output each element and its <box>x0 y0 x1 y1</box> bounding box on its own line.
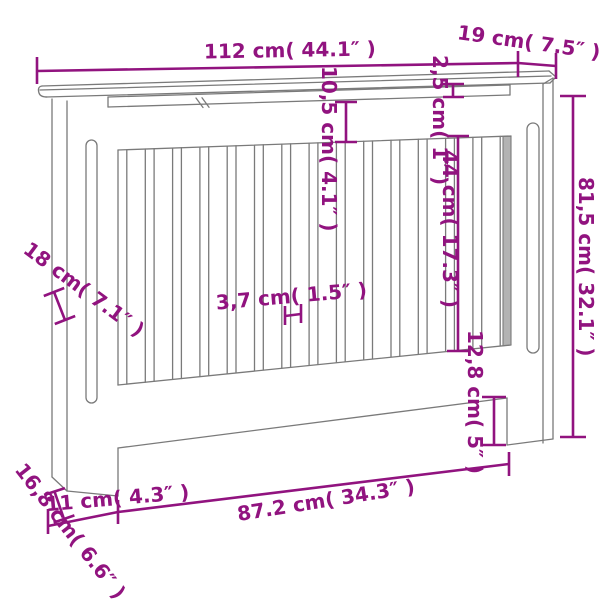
dim-top-depth-line <box>518 63 556 66</box>
right-foot-bottom <box>507 439 553 445</box>
dim-top-depth-label: 19 cm( 7.5″ ) <box>456 20 600 64</box>
dim-side-depth: 18 cm( 7.1″ ) <box>19 237 149 342</box>
dim-base-depth-label: 16,8 cm( 6.6″ ) <box>10 458 131 600</box>
dim-foot-height-label: 12,8 cm( 5″ ) <box>463 330 487 474</box>
diagram-canvas: 112 cm( 44.1″ ) 19 cm( 7.5″ ) 10,5 cm( 4… <box>0 0 600 600</box>
opening-top-edge <box>118 398 507 448</box>
right-capsule-slot <box>527 123 539 353</box>
right-side-panel <box>543 78 553 443</box>
dim-foot-height: 12,8 cm( 5″ ) <box>463 330 506 474</box>
rail-joint-line-2 <box>202 98 209 108</box>
dim-slat-width-line <box>285 314 301 316</box>
dim-slat-length: 44 cm( 17.3″ ) <box>438 136 469 351</box>
shaded-slat <box>503 136 511 346</box>
dim-base-depth: 16,8 cm( 6.6″ ) <box>10 458 131 600</box>
left-capsule-slot <box>86 140 97 403</box>
radiator-cover-drawing: 112 cm( 44.1″ ) 19 cm( 7.5″ ) 10,5 cm( 4… <box>0 0 600 600</box>
dim-total-height-label: 81,5 cm( 32.1″ ) <box>574 177 598 357</box>
shelf-bottom-edge <box>46 83 550 97</box>
top-shelf <box>38 71 556 97</box>
dim-shelf-gap-label: 10,5 cm( 4.1″ ) <box>317 66 341 232</box>
dim-side-depth-line <box>54 292 65 320</box>
dim-opening-width-label: 87.2 cm( 34.3″ ) <box>235 474 416 526</box>
dim-slat-length-label: 44 cm( 17.3″ ) <box>438 150 462 308</box>
dim-shelf-gap: 10,5 cm( 4.1″ ) <box>317 66 357 232</box>
dim-side-depth-label: 18 cm( 7.1″ ) <box>19 237 149 342</box>
dim-top-depth: 19 cm( 7.5″ ) <box>456 20 600 79</box>
dim-top-width-label: 112 cm( 44.1″ ) <box>204 37 376 64</box>
shelf-left-cap <box>38 86 47 97</box>
rail-joint-line-1 <box>196 98 203 108</box>
dim-total-height: 81,5 cm( 32.1″ ) <box>560 96 598 437</box>
